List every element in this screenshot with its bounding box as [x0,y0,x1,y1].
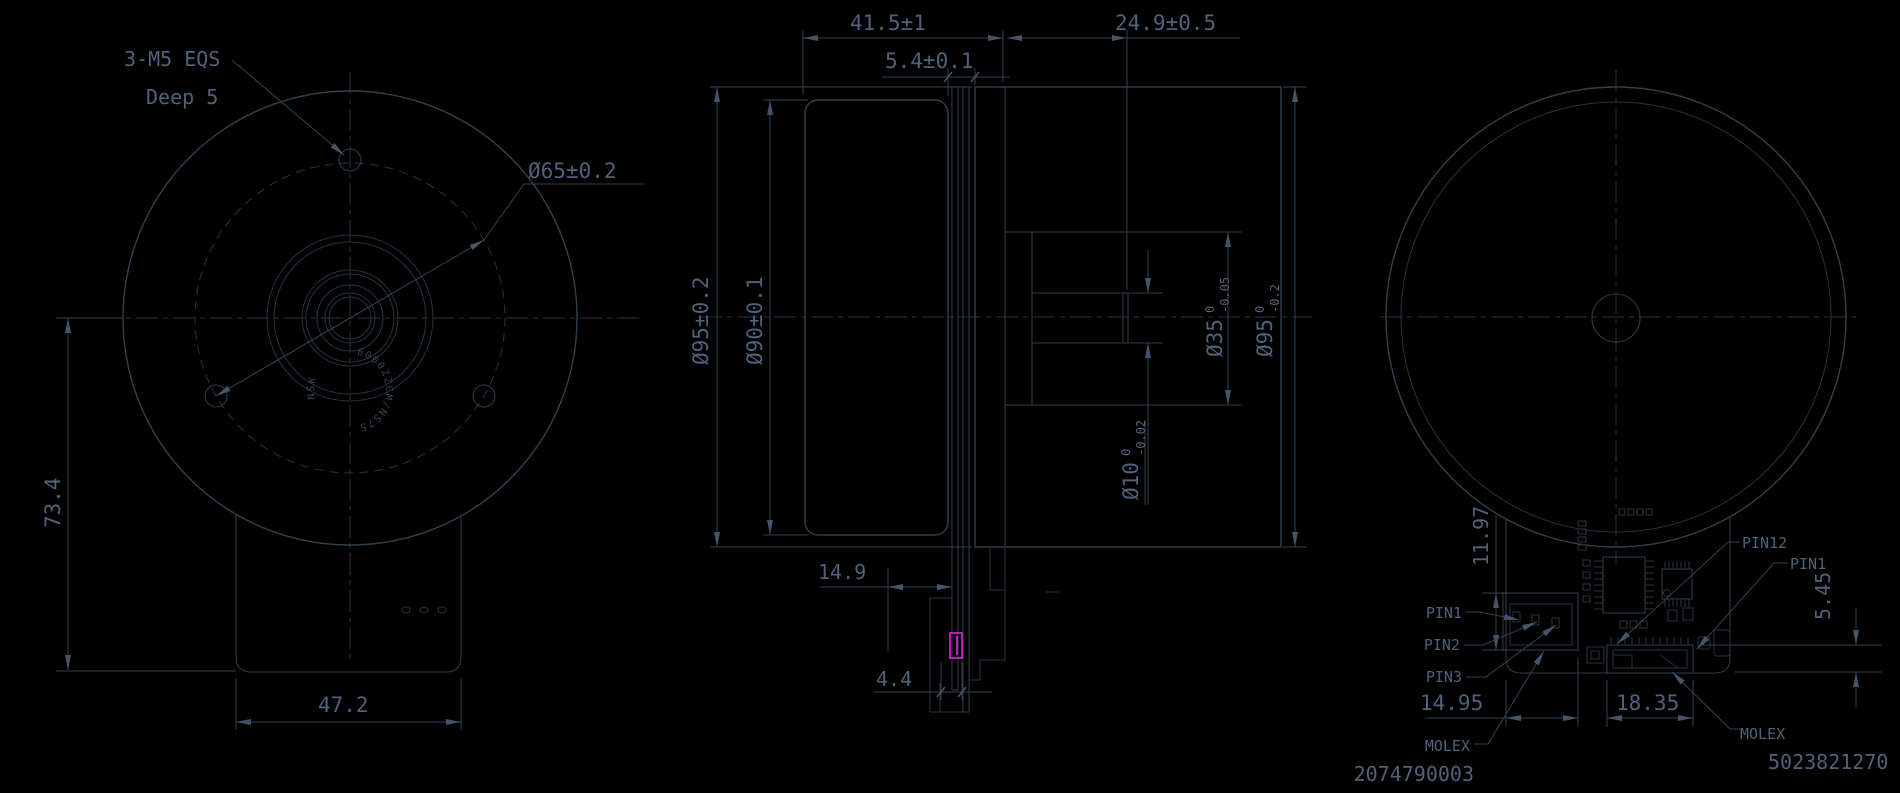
outer-dia-dim-text: Ø95±0.2 [689,276,713,365]
front-pin-1 [402,607,410,613]
front-pin-3 [438,607,446,613]
power-conn-dim-text: 14.95 [1420,691,1483,715]
thread-note-leader [232,60,344,155]
bolt-circle-dim-extension [484,184,644,240]
length-dim-text: 41.5±1 [850,11,926,35]
pin12-label: PIN12 [1742,534,1787,552]
depth-dim-text: 24.9±0.5 [1115,11,1216,35]
section-view: 41.5±1 24.9±0.5 5.4±0.1 Ø95±0.2 Ø90±0.1 … [689,11,1312,712]
bolt-circle-dim-text: Ø65±0.2 [528,159,617,183]
signal-conn-part: 5023821270 [1768,750,1888,774]
capacitor-small [1698,637,1710,649]
pcb-offset-dim-text: 14.9 [818,560,866,584]
power-conn-brand: MOLEX [1425,737,1470,755]
signal-conn-brand: MOLEX [1740,725,1785,743]
driver-ic [1594,557,1654,613]
signal-connector [1607,637,1693,673]
capacitor-large [1714,630,1730,656]
pin1-leader [1466,612,1519,620]
front-pin-2 [420,607,428,613]
pin1-label: PIN1 [1426,604,1462,622]
signal-connector-keying [1613,655,1678,668]
power-conn-part: 2074790003 [1354,762,1474,786]
pin2-label: PIN2 [1424,636,1460,654]
sensor-ic-pins [1665,561,1689,607]
signal-connector-pins [1611,637,1688,645]
rotor-dia-dim-text: Ø90±0.1 [743,276,767,365]
thread-note-line2: Deep 5 [146,85,218,109]
front-body-outline [236,514,461,672]
conn-height-dim-text: 5.45 [1811,572,1835,620]
motor-drawing: 6000ZZCM/NS7S NSK 3-M5 EQS Deep 5 Ø65±0.… [0,0,1900,793]
rear-view: 11.97 5.45 PIN1 PIN2 PIN3 PIN12 PIN1 14.… [1354,70,1889,786]
mounting-pad [1587,647,1604,663]
signal-conn-dim-text: 18.35 [1616,691,1679,715]
pin2-leader [1464,622,1537,645]
power-connector [1503,593,1578,650]
signal-conn-leader [1672,672,1740,729]
flange-dim-text: 5.4±0.1 [885,49,974,73]
pin3-label: PIN3 [1426,668,1462,686]
width-dim-text: 47.2 [318,693,369,717]
pin1-right-leader [1697,563,1788,649]
sensor-ic [1662,561,1692,607]
power-conn-leader [1474,651,1544,744]
pcb-edge-dim-text: 11.97 [1469,506,1493,566]
rear-dia-dim-text: Ø950-0.2 [1253,284,1282,357]
cad-drawing-canvas: 6000ZZCM/NS7S NSK 3-M5 EQS Deep 5 Ø65±0.… [0,0,1900,793]
front-view: 6000ZZCM/NS7S NSK 3-M5 EQS Deep 5 Ø65±0.… [41,47,644,730]
bearing-brand-text: NSK [306,375,319,401]
height-dim-text: 73.4 [41,477,65,528]
connector-dim-text: 4.4 [876,667,912,691]
thread-note-line1: 3-M5 EQS [124,47,220,71]
bracket-right-steps [969,547,1005,680]
shaft-dia-dim-text: Ø100-0.02 [1119,420,1148,500]
pin1-right-label: PIN1 [1790,555,1826,573]
